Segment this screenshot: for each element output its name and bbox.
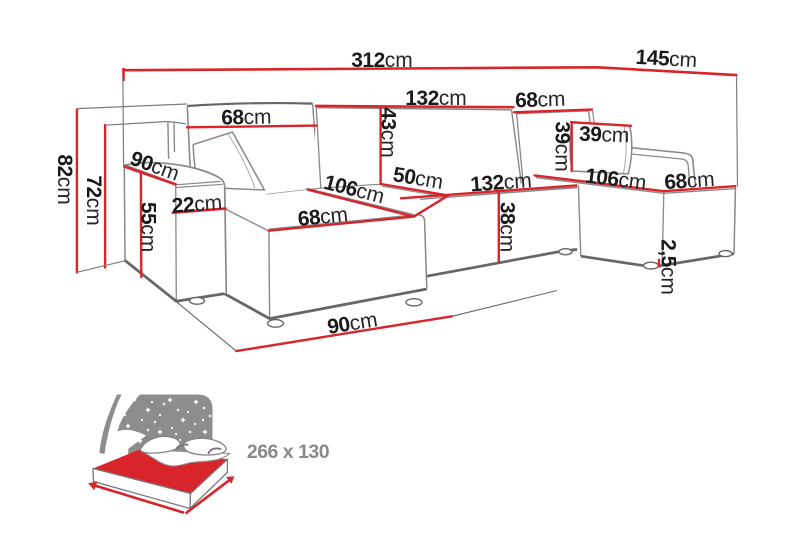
svg-text:132cm: 132cm (405, 87, 467, 110)
svg-text:39cm: 39cm (551, 121, 574, 171)
svg-text:68cm: 68cm (515, 88, 566, 113)
svg-text:38cm: 38cm (496, 202, 519, 252)
svg-text:68cm: 68cm (297, 203, 349, 231)
svg-text:68cm: 68cm (221, 106, 272, 130)
svg-text:68cm: 68cm (664, 168, 716, 194)
svg-text:312cm: 312cm (351, 49, 413, 72)
svg-text:2,5cm: 2,5cm (657, 239, 680, 295)
svg-text:72cm: 72cm (82, 175, 105, 225)
svg-text:39cm: 39cm (579, 123, 630, 148)
svg-text:145cm: 145cm (635, 46, 698, 72)
svg-text:43cm: 43cm (377, 107, 400, 157)
svg-text:132cm: 132cm (469, 169, 532, 196)
svg-text:266 x 130: 266 x 130 (247, 441, 330, 463)
svg-text:82cm: 82cm (53, 154, 76, 204)
svg-text:55cm: 55cm (137, 202, 160, 252)
svg-text:22cm: 22cm (171, 191, 223, 218)
